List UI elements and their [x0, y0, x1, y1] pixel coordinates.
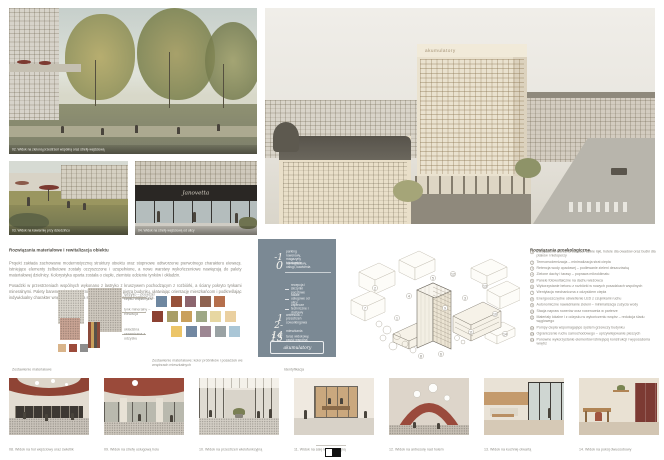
render-city-panorama: akumulatory — [265, 8, 655, 224]
color-swatch — [225, 311, 236, 322]
fascia-shape: Janovetta — [135, 185, 257, 201]
kitchen-cabinets — [484, 392, 528, 405]
color-swatch — [181, 311, 192, 322]
tree-canopy-shape — [205, 22, 257, 100]
person-silhouette — [138, 414, 141, 421]
person-silhouette — [257, 411, 260, 418]
terrazzo-floor — [9, 418, 89, 435]
tree-trunk-shape — [223, 64, 224, 108]
color-swatch — [200, 326, 211, 337]
collage-caption-text: Zestawienie materiałowe — [12, 368, 52, 372]
bottom-caption-text: 10. Widok na przestrzeń wielofunkcyjną — [199, 448, 262, 452]
eco-item-number: 3 — [530, 266, 534, 270]
render-open-kitchen — [484, 378, 564, 435]
person-silhouette — [217, 124, 220, 131]
person-silhouette — [235, 213, 238, 223]
material-chip — [69, 344, 77, 352]
person-silhouette — [135, 125, 138, 133]
identity-caption-text: Identyfikacja — [284, 368, 304, 372]
column-shape — [120, 398, 127, 424]
plant-shape — [617, 385, 625, 390]
person-silhouette — [67, 201, 70, 208]
umbrella-shape — [17, 60, 31, 64]
person-silhouette — [193, 212, 196, 222]
render-caption: 04. Widok na strefę wejściową od ulicy — [138, 229, 194, 232]
eco-item-number: 1 — [530, 250, 534, 254]
divider-rule — [285, 272, 331, 273]
umbrella-shape — [15, 181, 29, 185]
person-silhouette — [23, 412, 26, 419]
render-caption-bar: 02. Widok na zieloną przestrzeń wspólną … — [9, 145, 257, 154]
historic-building-shape — [279, 136, 411, 224]
chair-shape — [595, 412, 602, 421]
render-caption-bar: 03. Widok na kawiarnię przy dziedzińcu — [9, 226, 128, 235]
color-swatch — [210, 311, 221, 322]
material-chip — [58, 344, 66, 352]
bottom-caption-text: 12. Widok na antresolę nad holem — [389, 448, 444, 452]
svg-text:7: 7 — [364, 306, 366, 310]
eco-item-text: Materiały lokalne i z odzysku w wykończe… — [536, 315, 656, 323]
render-mezzanine-arch — [389, 378, 469, 435]
color-swatch — [185, 296, 196, 307]
bottom-caption-text: 08. Widok na hol wejściowy oraz świetlik — [9, 448, 74, 452]
palette-row — [156, 296, 252, 311]
umbrella-pole-shape — [48, 189, 49, 201]
tower-shape: akumulatory — [417, 44, 527, 178]
person-silhouette — [548, 408, 551, 418]
bottom-caption-text: 14. Widok na pokój dwuosobowy — [579, 448, 631, 452]
materials-paragraph: Projekt zakłada zachowanie modernistyczn… — [9, 261, 242, 279]
tower-window-grid — [420, 59, 524, 174]
light-globe — [35, 381, 39, 385]
person-silhouette — [61, 126, 64, 133]
eco-item-number: 8 — [530, 297, 534, 301]
svg-text:6: 6 — [440, 352, 442, 356]
umbrella-shape — [39, 61, 51, 65]
floor-shape — [579, 422, 659, 435]
svg-text:12: 12 — [451, 272, 455, 276]
person-silhouette — [101, 128, 104, 135]
materials-heading: Rozwiązania materiałowe i rewitalizacja … — [9, 248, 109, 253]
street-tree-shape — [393, 180, 423, 202]
shelf-shape — [613, 390, 629, 392]
podium-roof-shape — [9, 64, 81, 72]
eco-list-item: 2Termomodernizacja – minimalizacja strat… — [530, 260, 656, 264]
program-panel: -1 parking rowerowy, magazyny lokatorski… — [258, 239, 336, 357]
eco-item-text: Ograniczenie ruchu samochodowego – uprzy… — [536, 332, 640, 336]
eco-list-item: 6Wykorzystanie betonu z rozbiórki w nowy… — [530, 285, 656, 289]
person-silhouette — [304, 410, 307, 419]
eco-list-item: 3Retencja wody opadowej – podlewanie zie… — [530, 266, 656, 270]
bottom-caption: 10. Widok na przestrzeń wielofunkcyjną — [199, 439, 304, 457]
terrazzo-floor — [389, 425, 469, 435]
foreground-roof-shape — [411, 194, 531, 224]
eco-item-number: 10 — [530, 309, 534, 313]
render-caption: 02. Widok na zieloną przestrzeń wspólną … — [12, 148, 104, 151]
svg-text:14: 14 — [503, 332, 507, 336]
svg-text:5: 5 — [432, 276, 434, 280]
person-silhouette — [71, 413, 74, 420]
eco-list: 1Zwiększenie bioróżnorodności: dzikie łą… — [530, 250, 656, 348]
svg-text:13: 13 — [483, 284, 487, 288]
eco-item-text: Autonomiczne nawadnianie zieleni – minim… — [536, 303, 638, 307]
eco-item-number: 6 — [530, 285, 534, 289]
eco-item-number: 2 — [530, 260, 534, 264]
eco-item-text: Energooszczędne oświetlenie LED z czujni… — [536, 297, 621, 301]
storefront-sign: Janovetta — [183, 190, 210, 196]
logo-cell-white — [325, 448, 333, 457]
color-swatch — [200, 296, 211, 307]
render-double-room — [579, 378, 659, 435]
color-swatch — [229, 326, 240, 337]
eco-list-item: 14Ponowne wykorzystanie elementów istnie… — [530, 338, 656, 346]
eco-list-item: 12Pompy ciepła wspomagające system grzew… — [530, 326, 656, 330]
render-lobby-skylight — [9, 378, 89, 435]
eco-item-text: Retencja wody opadowej – podlewanie ziel… — [536, 266, 628, 270]
color-swatch — [152, 311, 163, 322]
floor-row: 0 hol wejściowy, usługi, kawiarnia — [263, 259, 333, 273]
desk-leg — [607, 411, 609, 422]
palette-caption-text: Zestawienie materiałowe: kolor próbników… — [152, 359, 248, 368]
svg-text:3: 3 — [464, 296, 466, 300]
umbrella-shape — [39, 185, 59, 190]
person-silhouette — [328, 398, 331, 404]
eco-item-number: 9 — [530, 303, 534, 307]
svg-text:8: 8 — [420, 354, 422, 358]
roofline-shape — [520, 92, 655, 98]
eco-item-text: Pompy ciepła wspomagające system grzewcz… — [536, 326, 624, 330]
material-chip — [80, 344, 88, 352]
logo-cell-black — [333, 448, 341, 457]
dining-table — [492, 414, 514, 417]
render-storefront: Janovetta 04. Widok na strefę wejściową … — [135, 161, 257, 235]
person-silhouette — [437, 423, 440, 429]
render-cafe: 03. Widok na kawiarnię przy dziedzińcu — [9, 161, 128, 235]
eco-item-text: Panele fotowoltaiczne na dachu wieżowca — [536, 279, 602, 283]
tree-canopy-shape — [137, 8, 215, 100]
material-label: tynk mineralny – elewacja — [124, 306, 154, 324]
eco-item-text: Stacja napraw rowerów oraz rowerownia w … — [536, 309, 617, 313]
column-shape — [156, 398, 163, 424]
svg-text:1: 1 — [396, 316, 398, 320]
person-silhouette — [27, 197, 30, 206]
presentation-board: 02. Widok na zieloną przestrzeń wspólną … — [0, 0, 664, 460]
eco-item-number: 12 — [530, 326, 534, 330]
person-silhouette — [157, 211, 160, 222]
person-silhouette — [83, 203, 86, 210]
corner-turret-shape — [273, 122, 299, 152]
color-swatch — [156, 296, 167, 307]
tree-trunk-shape — [169, 52, 170, 108]
render-lobby-curve — [104, 378, 184, 435]
red-wardrobe — [635, 383, 657, 427]
eco-item-text: Ponowne wykorzystanie elementów istnieją… — [536, 338, 656, 346]
eco-item-number: 7 — [530, 291, 534, 295]
eco-item-text: Zielone dachy i tarasy – poprawa mikrokl… — [536, 273, 609, 277]
collage-caption: Zestawienie materiałowe — [12, 359, 78, 377]
bottom-caption-text: 13. Widok na kuchnię otwartą — [484, 448, 531, 452]
terrazzo-floor — [104, 422, 184, 435]
footer-text-line — [316, 445, 346, 446]
plaster-sample — [60, 318, 80, 340]
palette-row — [171, 326, 252, 341]
color-swatch — [215, 326, 226, 337]
eco-item-text: Termomodernizacja – minimalizacja strat … — [536, 260, 610, 264]
eco-list-item: 13Ograniczenie ruchu samochodowego – upr… — [530, 332, 656, 336]
svg-text:11: 11 — [469, 330, 473, 334]
eco-list-item: 5Panele fotowoltaiczne na dachu wieżowca — [530, 279, 656, 283]
render-courtyard: 02. Widok na zieloną przestrzeń wspólną … — [9, 8, 257, 154]
eco-item-text: Zwiększenie bioróżnorodności: dzikie łąk… — [536, 250, 656, 258]
eco-item-number: 4 — [530, 273, 534, 277]
path-shape — [9, 126, 257, 137]
light-globe — [132, 380, 138, 386]
person-silhouette — [45, 414, 48, 421]
color-swatch — [171, 326, 182, 337]
desk-leg — [585, 411, 587, 422]
color-swatch — [167, 311, 178, 322]
eco-list-item: 10Stacja napraw rowerów oraz rowerownia … — [530, 309, 656, 313]
eco-list-item: 11Materiały lokalne i z odzysku w wykońc… — [530, 315, 656, 323]
eco-list-item: 4Zielone dachy i tarasy – poprawa mikrok… — [530, 273, 656, 277]
tree-canopy-shape — [65, 14, 135, 100]
eco-item-number: 13 — [530, 332, 534, 336]
person-silhouette — [209, 410, 212, 417]
person-silhouette — [340, 398, 343, 404]
floor-shape — [484, 420, 564, 435]
eco-item-number: 5 — [530, 279, 534, 283]
person-silhouette — [269, 409, 272, 418]
person-silhouette — [177, 127, 180, 134]
ceiling-shape — [199, 378, 279, 388]
eco-item-number: 11 — [530, 315, 534, 319]
tower-crown-shape: akumulatory — [417, 44, 527, 57]
vehicle-shape — [611, 168, 627, 175]
terrazzo-floor — [199, 418, 279, 435]
tree-trunk-shape — [95, 60, 96, 106]
eco-list-item: 9Autonomiczne nawadnianie zieleni – mini… — [530, 303, 656, 307]
red-ceiling-curve — [104, 378, 184, 396]
person-silhouette — [413, 422, 416, 428]
eco-list-item: 1Zwiększenie bioróżnorodności: dzikie łą… — [530, 250, 656, 258]
identity-caption: Identyfikacja — [284, 359, 317, 377]
render-atrium-corridor — [199, 378, 279, 435]
palette-row — [152, 311, 252, 326]
identity-logo-box: akumulatory — [270, 341, 324, 354]
bottom-caption-text: 09. Widok na strefę usługową holu — [104, 448, 159, 452]
person-silhouette — [364, 411, 367, 418]
background-building-shape — [61, 165, 128, 199]
color-swatch — [186, 326, 197, 337]
light-globe — [65, 383, 68, 386]
bottom-caption: 14. Widok na pokój dwuosobowy — [579, 439, 664, 457]
eco-list-item: 8Energooszczędne oświetlenie LED z czujn… — [530, 297, 656, 301]
svg-text:2: 2 — [374, 286, 376, 290]
color-swatch — [171, 296, 182, 307]
svg-text:10: 10 — [493, 312, 497, 316]
wood-strip-sample — [88, 322, 100, 348]
color-swatch — [196, 311, 207, 322]
material-label: okładzina ceramiczna z odzysku — [124, 328, 154, 352]
eco-item-text: Wentylacja mechaniczna z odzyskiem ciepł… — [536, 291, 606, 295]
tower-sign-text: akumulatory — [425, 48, 456, 53]
floor-shape — [294, 418, 374, 435]
eco-item-text: Wykorzystanie betonu z rozbiórki w nowyc… — [536, 285, 642, 289]
competition-logo — [325, 448, 341, 457]
render-conference-room — [294, 378, 374, 435]
tower-podium-shape — [415, 176, 531, 194]
color-palette-grid — [152, 296, 252, 341]
identity-logo-text: akumulatory — [283, 345, 311, 350]
color-swatch — [214, 296, 225, 307]
bottom-caption: 09. Widok na strefę usługową holu — [104, 439, 196, 457]
svg-text:4: 4 — [408, 294, 410, 298]
bottom-caption: 12. Widok na antresolę nad holem — [389, 439, 480, 457]
historic-windows-shape — [283, 162, 407, 224]
upper-facade-shape — [135, 161, 257, 185]
conference-table — [322, 406, 350, 410]
render-caption-bar: 04. Widok na strefę wejściową od ulicy — [135, 226, 257, 235]
glass-conference-wall — [314, 386, 358, 418]
floor-label: hol wejściowy, usługi, kawiarnia — [286, 262, 312, 270]
floor-level: 0 — [263, 259, 283, 272]
axonometric-diagram: 5429311310681114712 — [345, 238, 520, 363]
eco-list-item: 7Wentylacja mechaniczna z odzyskiem ciep… — [530, 291, 656, 295]
bottom-caption: 08. Widok na hol wejściowy oraz świetlik — [9, 439, 117, 457]
eco-item-number: 14 — [530, 338, 534, 342]
crosswalk-shape — [569, 202, 629, 212]
street-tree-shape — [515, 158, 541, 178]
glass-partition — [199, 388, 225, 420]
svg-text:9: 9 — [444, 306, 446, 310]
light-globe — [51, 379, 55, 383]
bottom-caption: 13. Widok na kuchnię otwartą — [484, 439, 563, 457]
render-caption: 03. Widok na kawiarnię przy dziedzińcu — [12, 229, 70, 232]
person-silhouette — [170, 415, 173, 422]
